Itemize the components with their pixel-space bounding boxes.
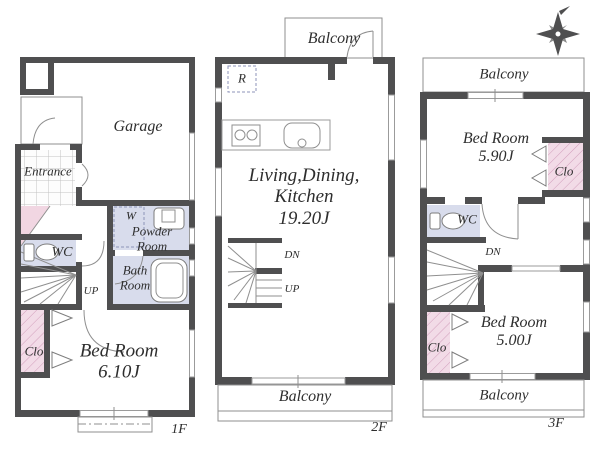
compass-rose-icon <box>536 6 580 56</box>
stairs-up-label-2f: UP <box>285 283 300 295</box>
window <box>190 260 195 276</box>
closet-label-3f-upper: Clo <box>555 165 574 180</box>
stairs-2f <box>228 238 282 308</box>
door-arc <box>482 204 518 239</box>
room-label-bedroom-1f: Bed Room 6.10J <box>80 341 159 384</box>
terrace-outline <box>78 417 152 432</box>
balcony-label-3f-top: Balcony <box>479 67 528 84</box>
window <box>190 330 195 377</box>
stairs-dn-label-3f: DN <box>485 246 500 258</box>
garage-door <box>190 133 195 200</box>
stairs-dn-label-2f: DN <box>284 249 299 261</box>
closet-doors-1f <box>52 310 72 368</box>
room-label-garage: Garage <box>114 118 163 136</box>
closet-label-1f: Clo <box>25 345 44 360</box>
room-label-bath-room: Bath Room <box>120 263 150 292</box>
floor-label-1f: 1F <box>171 422 187 438</box>
window <box>190 228 195 244</box>
kitchen-counter <box>222 120 330 150</box>
window <box>584 198 590 222</box>
stairs-3f <box>427 250 483 305</box>
balcony-label-2f-bottom: Balcony <box>279 388 331 406</box>
room-label-entrance: Entrance <box>24 165 72 180</box>
window <box>421 140 427 188</box>
window <box>216 88 222 102</box>
window <box>389 95 395 160</box>
bathtub-icon <box>151 259 187 302</box>
window <box>389 257 395 303</box>
refrigerator-label: R <box>238 72 246 87</box>
approach-tiles <box>21 97 82 144</box>
closet-label-3f-lower: Clo <box>428 341 447 356</box>
room-label-wc-3f: WC <box>457 213 477 228</box>
room-label-powder-room: Powder Room <box>132 224 172 253</box>
room-label-ldk: Living,Dining, Kitchen 19.20J <box>249 165 360 229</box>
closet-1f <box>21 310 48 372</box>
room-label-bedroom1-3f: Bed Room 5.90J <box>463 130 529 166</box>
window <box>584 240 590 264</box>
window <box>216 168 222 216</box>
door-arc <box>33 118 55 144</box>
room-label-bedroom2-3f: Bed Room 5.00J <box>481 314 547 350</box>
stairs-up-label-1f: UP <box>84 285 99 297</box>
balcony-label-2f-top: Balcony <box>308 30 360 48</box>
entrance-door <box>75 163 83 187</box>
window <box>584 302 590 332</box>
balcony-label-3f-bottom: Balcony <box>479 388 528 405</box>
room-label-wc-1f: WC <box>52 245 73 261</box>
washing-machine-label: W <box>126 209 136 222</box>
floor-label-2f: 2F <box>371 420 387 436</box>
door-arc <box>82 241 104 266</box>
floor-plan: Garage Entrance WC UP W Powder Room Bath… <box>0 0 600 456</box>
sliding-door <box>512 266 560 271</box>
floor-label-3f: 3F <box>548 416 564 432</box>
